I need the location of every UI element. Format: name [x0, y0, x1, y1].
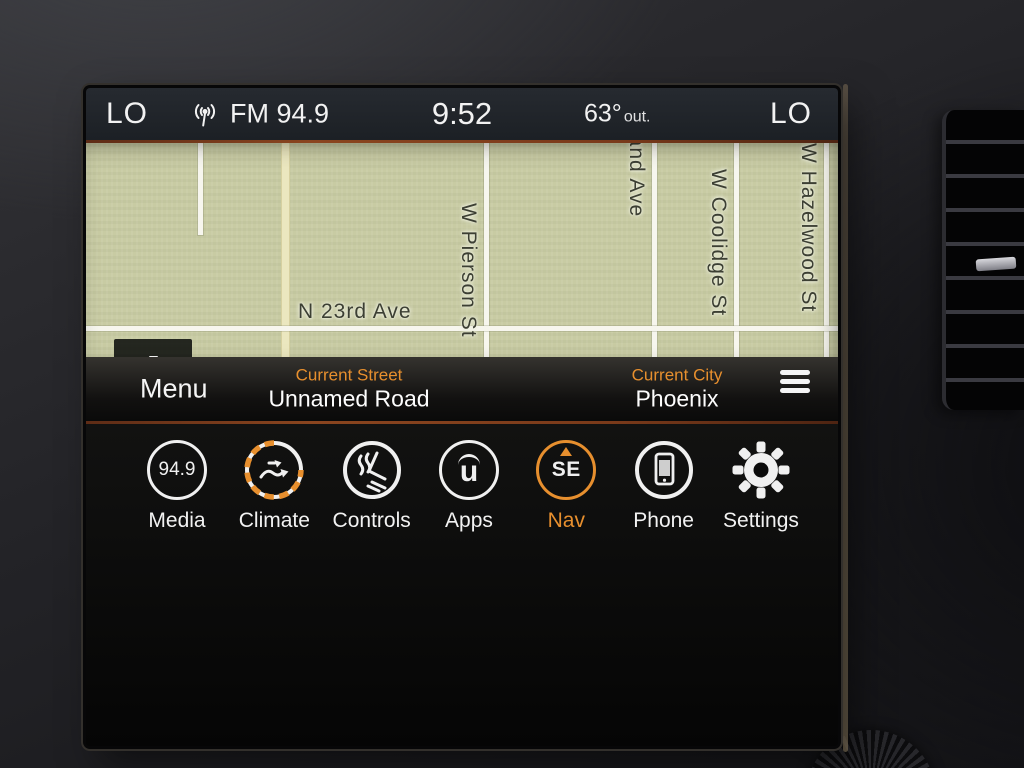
- dock-label-phone: Phone: [633, 509, 694, 533]
- map-zoom-controls: [114, 339, 192, 357]
- antenna-icon: [190, 101, 220, 128]
- dashboard-background: LO FM 94.9 9:52 63° out.: [0, 0, 1024, 768]
- road-coolidge: [734, 143, 739, 357]
- outside-temperature: 63° out.: [584, 100, 651, 129]
- dock-item-nav[interactable]: SE Nav: [519, 438, 613, 533]
- dock-label-controls: Controls: [333, 509, 411, 533]
- dock-item-media[interactable]: 94.9 Media: [130, 438, 224, 533]
- hamburger-icon: [780, 379, 810, 384]
- current-city-value: Phoenix: [572, 385, 782, 413]
- road-land-ave: [652, 143, 657, 357]
- bezel-seam: [843, 84, 848, 752]
- infotainment-screen: LO FM 94.9 9:52 63° out.: [86, 88, 838, 746]
- media-icon: 94.9: [147, 440, 207, 500]
- controls-icon: [341, 439, 403, 501]
- radio-station-label: FM 94.9: [230, 99, 329, 130]
- air-vent: [942, 110, 1024, 410]
- hamburger-icon: [780, 370, 810, 375]
- status-right-badge: LO: [770, 97, 812, 131]
- settings-gear-icon: [730, 439, 792, 501]
- dock-item-climate[interactable]: Climate: [227, 438, 321, 533]
- dock-label-apps: Apps: [445, 509, 493, 533]
- street-label-coolidge: W Coolidge St: [706, 169, 730, 316]
- status-bar: LO FM 94.9 9:52 63° out.: [86, 88, 838, 140]
- nav-icon: SE: [536, 440, 596, 500]
- media-frequency: 94.9: [159, 459, 196, 481]
- vent-toggle: [976, 257, 1017, 272]
- dock-label-settings: Settings: [723, 509, 799, 533]
- outside-temperature-value: 63°: [584, 100, 622, 129]
- current-city-label: Current City: [572, 364, 782, 385]
- dock-item-controls[interactable]: Controls: [325, 438, 419, 533]
- road-major: [282, 143, 289, 357]
- radio-station: FM 94.9: [190, 99, 329, 130]
- map-options-button[interactable]: [780, 366, 810, 397]
- road-hazelwood: [824, 143, 829, 357]
- street-label-land-ave: land Ave: [624, 143, 648, 217]
- outside-temperature-suffix: out.: [624, 109, 651, 127]
- status-left-badge: LO: [106, 97, 148, 131]
- current-city: Current City Phoenix: [572, 364, 782, 413]
- phone-icon: [633, 439, 695, 501]
- clock: 9:52: [432, 96, 492, 132]
- road-segment: [198, 143, 203, 235]
- dock-label-nav: Nav: [548, 509, 585, 533]
- road-pierson: [484, 143, 489, 357]
- hamburger-icon: [780, 388, 810, 393]
- street-label-pierson: W Pierson St: [456, 203, 480, 338]
- dock-label-climate: Climate: [239, 509, 310, 533]
- nav-heading: SE: [552, 458, 581, 482]
- dock-item-phone[interactable]: Phone: [617, 438, 711, 533]
- uconnect-logo: u: [460, 457, 478, 487]
- street-label-hazelwood: W Hazelwood St: [796, 143, 820, 312]
- menu-button[interactable]: Menu: [140, 373, 208, 404]
- street-label-23rd-ave: N 23rd Ave: [298, 300, 412, 324]
- climate-icon: [243, 439, 305, 501]
- map-canvas[interactable]: N 23rd Ave W Pierson St land Ave W Cooli…: [86, 143, 838, 357]
- current-street-label: Current Street: [244, 364, 454, 385]
- current-street: Current Street Unnamed Road: [244, 364, 454, 413]
- zoom-in-button[interactable]: [114, 339, 192, 357]
- dock-label-media: Media: [148, 509, 205, 533]
- dock-item-apps[interactable]: u Apps: [422, 438, 516, 533]
- app-dock: 94.9 Media C: [86, 424, 838, 747]
- info-bar: Menu Current Street Unnamed Road Current…: [86, 357, 838, 421]
- dock-item-settings[interactable]: Settings: [714, 438, 808, 533]
- current-street-value: Unnamed Road: [244, 385, 454, 413]
- heading-arrow-icon: [560, 447, 572, 456]
- apps-icon: u: [439, 440, 499, 500]
